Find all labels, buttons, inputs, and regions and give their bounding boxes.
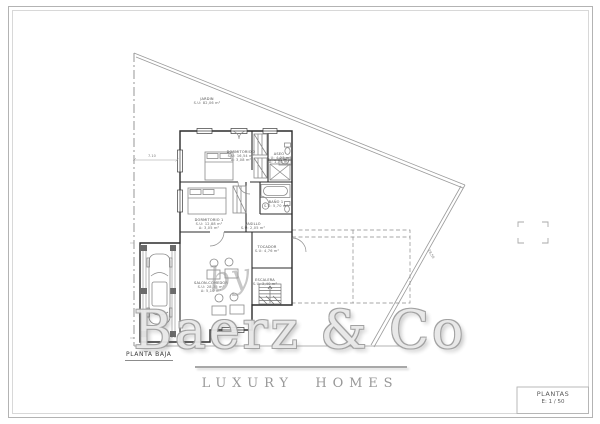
terrace-outline [292,230,410,303]
room-label-bano-1: BAÑO 1 S.U: 5,70 m² [264,200,288,208]
bedroom-furniture [188,134,267,214]
corner-bracket-marker [518,222,548,243]
room-label-escalera: ESCALERA S.U: 3,40 m² [253,278,277,286]
architectural-sheet: JARDIN S.U: 82,06 m² DORMITORIO 2 S.U: 1… [0,0,600,424]
watermark-tagline: LUXURY HOMES [0,376,600,391]
plan-title: PLANTA BAJA [126,351,172,358]
room-label-jardin: JARDIN S.U: 82,06 m² [194,97,221,105]
title-block: PLANTAS E: 1 / 50 [517,390,589,405]
room-label-dormitorio-1: DORMITORIO 1 S.U: 12,88 m² A: 3,05 m² [195,218,224,230]
staircase [259,284,281,304]
title-block-title: PLANTAS [517,390,589,398]
room-label-tocador: TOCADOR S.U: 4,76 m² [255,245,279,253]
room-label-dormitorio-2: DORMITORIO 2 S.U: 16,54 m² A: 3,08 m² [227,150,256,162]
dimension-jardin-width: 7.10 [148,154,156,158]
title-block-scale: E: 1 / 50 [517,399,589,405]
room-label-aseo: ASEO S.U: 4,23 m² A: 1,70 m² [267,152,291,164]
page-frame [9,7,593,418]
watermark-by: by [206,255,252,300]
garage-car [141,245,176,338]
floor-plan-drawing [0,0,600,424]
room-label-pasillo: PASILLO S.U: 2,05 m² [241,222,265,230]
plan-title-underline [125,360,173,361]
watermark-divider [195,366,407,368]
